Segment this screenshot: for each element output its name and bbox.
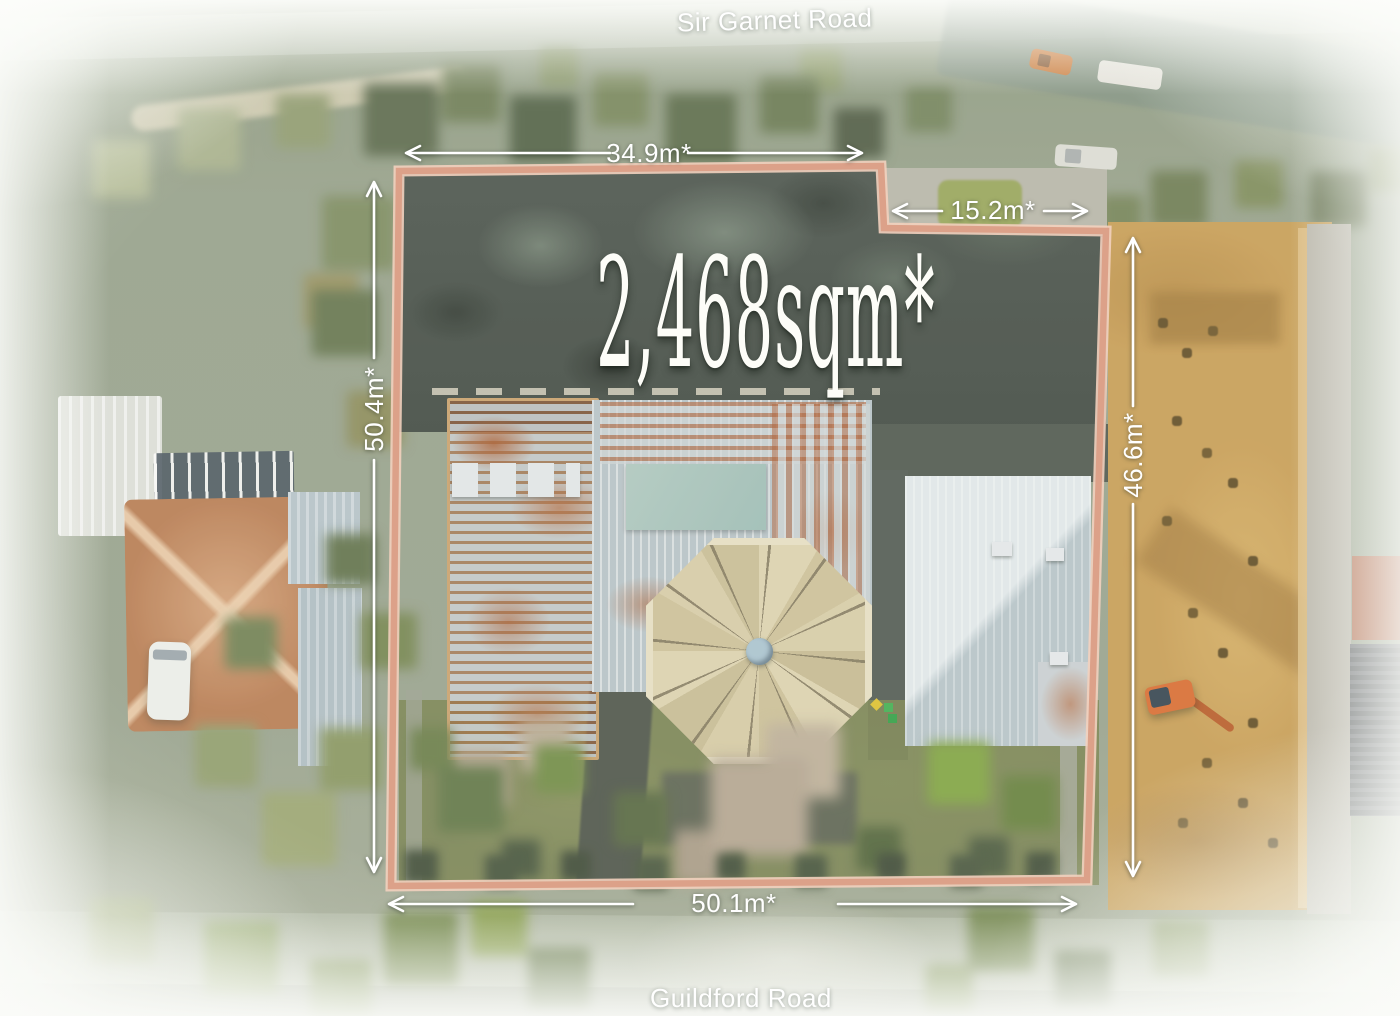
neighbour-glass-roof xyxy=(154,451,295,503)
roof-vent-box xyxy=(1050,652,1068,665)
neighbour-red-building xyxy=(1352,556,1400,640)
roof-vent-box xyxy=(992,542,1012,556)
timber-fence xyxy=(1298,228,1307,908)
road-label-top: Sir Garnet Road xyxy=(677,2,873,38)
neighbour-annex-roof-2 xyxy=(298,588,362,766)
yard-marker-green xyxy=(884,703,893,712)
roof-vent-box xyxy=(1046,548,1064,561)
dimension-label-left: 50.4m* xyxy=(359,366,389,451)
neighbour-driveway xyxy=(1307,224,1351,914)
excavation-trench xyxy=(1150,292,1280,344)
roof-cupola xyxy=(746,638,773,665)
aerial-property-photo: 34.9m* 15.2m* 50.4m* 46.6m* xyxy=(0,0,1400,1016)
yard-marker-green xyxy=(888,714,897,723)
rusty-roof-building xyxy=(447,398,599,760)
notch-grass xyxy=(938,180,1022,228)
blue-roof-panel xyxy=(626,464,766,530)
dimension-arrow-top: 34.9m* xyxy=(406,138,862,168)
dimension-label-top: 34.9m* xyxy=(606,138,691,168)
parked-van xyxy=(147,641,192,720)
land-area-label: 2,468sqm* xyxy=(596,238,884,390)
lot-path-shadow xyxy=(662,772,857,844)
tree-cluster-bottom xyxy=(0,0,2,2)
neighbour-dark-roof xyxy=(1350,644,1400,816)
roof-vents xyxy=(452,463,580,497)
parked-car-white xyxy=(1054,144,1117,170)
lot-side-path-west xyxy=(406,690,422,882)
footpath xyxy=(130,65,471,132)
right-roof-rust-corner xyxy=(1038,662,1092,746)
dimension-arrow-left: 50.4m* xyxy=(359,182,389,872)
neighbour-annex-roof xyxy=(288,492,360,584)
road-label-bottom: Guildford Road xyxy=(650,983,832,1014)
